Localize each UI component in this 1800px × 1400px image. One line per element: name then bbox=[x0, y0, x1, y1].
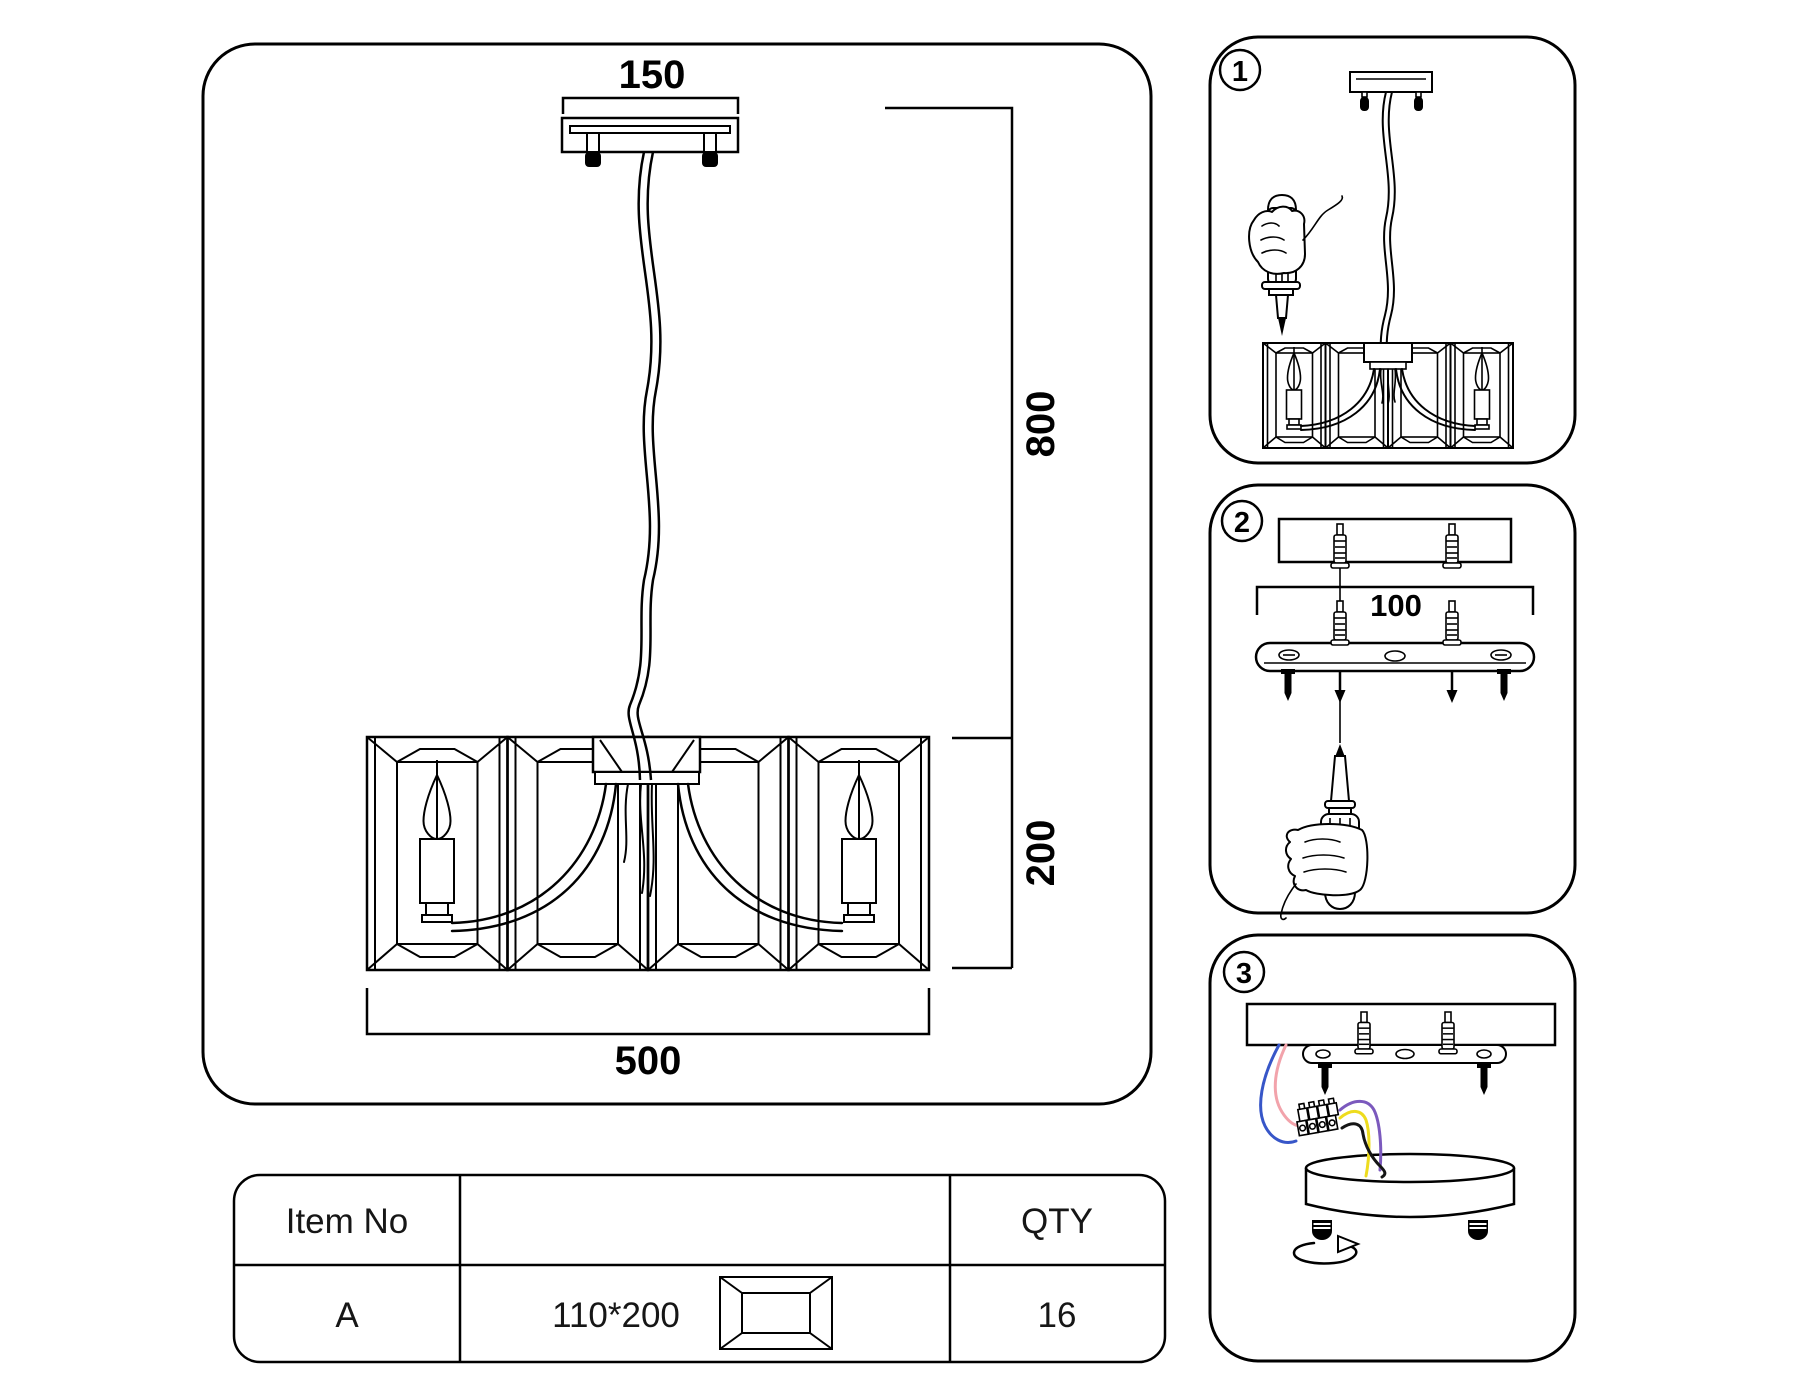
step1-panel: 1 bbox=[1210, 37, 1575, 463]
suspension-cable-icon bbox=[629, 152, 661, 780]
screw-icon bbox=[1318, 1063, 1332, 1095]
step-badge: 2 bbox=[1222, 501, 1262, 541]
wire-end bbox=[1303, 196, 1342, 240]
table-cell-item-no: A bbox=[335, 1296, 359, 1335]
mounting-bar bbox=[1303, 1045, 1506, 1063]
candle-icon bbox=[1287, 347, 1302, 429]
step2-panel: 2 100 bbox=[1210, 485, 1575, 919]
rotate-arrow-icon bbox=[1294, 1236, 1358, 1263]
step3-number: 3 bbox=[1236, 958, 1252, 990]
screw-icon bbox=[1497, 669, 1511, 701]
dim-hole-spacing: 100 bbox=[1257, 587, 1533, 623]
wall-anchor-icon bbox=[1443, 601, 1461, 645]
table-cell-qty: 16 bbox=[1038, 1296, 1077, 1335]
hand-screwdriver-up bbox=[1281, 744, 1368, 919]
hand-icon bbox=[1249, 207, 1305, 274]
ceiling-plate bbox=[1247, 1004, 1555, 1045]
main-diagram-panel: 150 bbox=[203, 44, 1151, 1104]
screw-icon bbox=[1477, 1063, 1491, 1095]
instruction-sheet: 150 bbox=[0, 0, 1800, 1400]
ceiling-canopy-icon bbox=[562, 118, 738, 167]
shade-height-label: 200 bbox=[1019, 820, 1063, 887]
hole-spacing-label: 100 bbox=[1370, 588, 1422, 623]
screwdriver-icon bbox=[1276, 295, 1288, 318]
shade-width-label: 500 bbox=[615, 1039, 682, 1083]
step3-panel: 3 bbox=[1210, 935, 1575, 1361]
instruction-canvas: 150 bbox=[0, 0, 1800, 1400]
wire-blue bbox=[1261, 1045, 1296, 1143]
parts-table: Item No QTY A 110*200 16 bbox=[234, 1175, 1165, 1362]
screw-knob-icon bbox=[1468, 1220, 1488, 1240]
canopy-width-label: 150 bbox=[619, 53, 686, 97]
arrow-down-icon bbox=[1335, 672, 1346, 703]
step-badge: 3 bbox=[1224, 952, 1264, 992]
screw-knob-icon bbox=[1312, 1220, 1332, 1240]
crystal-panel-icon bbox=[720, 1277, 832, 1349]
suspension-cable-icon bbox=[1381, 92, 1395, 366]
wall-anchor-icon bbox=[1331, 601, 1349, 645]
candle-icon bbox=[1475, 347, 1490, 429]
suspension-height-label: 800 bbox=[1019, 391, 1063, 458]
crystal-chandelier bbox=[367, 737, 929, 970]
dim-shade-width: 500 bbox=[367, 988, 929, 1083]
arrow-down-icon bbox=[1447, 672, 1458, 703]
ceiling-canopy-icon bbox=[1350, 72, 1432, 111]
table-cell-size: 110*200 bbox=[552, 1296, 680, 1335]
dim-suspension-height: 800 200 bbox=[885, 108, 1063, 968]
candle-icon bbox=[842, 760, 876, 922]
screw-icon bbox=[1281, 669, 1295, 701]
wire-pink bbox=[1275, 1045, 1299, 1126]
table-header-item: Item No bbox=[286, 1202, 409, 1241]
step-badge: 1 bbox=[1220, 50, 1260, 90]
terminal-block-icon bbox=[1294, 1098, 1341, 1136]
step3-border bbox=[1210, 935, 1575, 1361]
step1-number: 1 bbox=[1232, 56, 1248, 88]
mounting-bar bbox=[1256, 643, 1534, 671]
screwdriver-icon bbox=[1331, 756, 1349, 801]
candle-icon bbox=[420, 760, 454, 922]
round-canopy-icon bbox=[1306, 1154, 1514, 1217]
step2-number: 2 bbox=[1234, 507, 1250, 539]
dim-canopy-width: 150 bbox=[563, 53, 738, 114]
crystal-chandelier-small bbox=[1263, 343, 1513, 448]
chandelier-hub bbox=[593, 737, 700, 784]
hand-screwdriver bbox=[1249, 195, 1342, 336]
table-header-qty: QTY bbox=[1021, 1202, 1093, 1241]
hand-icon bbox=[1281, 824, 1368, 919]
ceiling-plate bbox=[1279, 519, 1511, 562]
